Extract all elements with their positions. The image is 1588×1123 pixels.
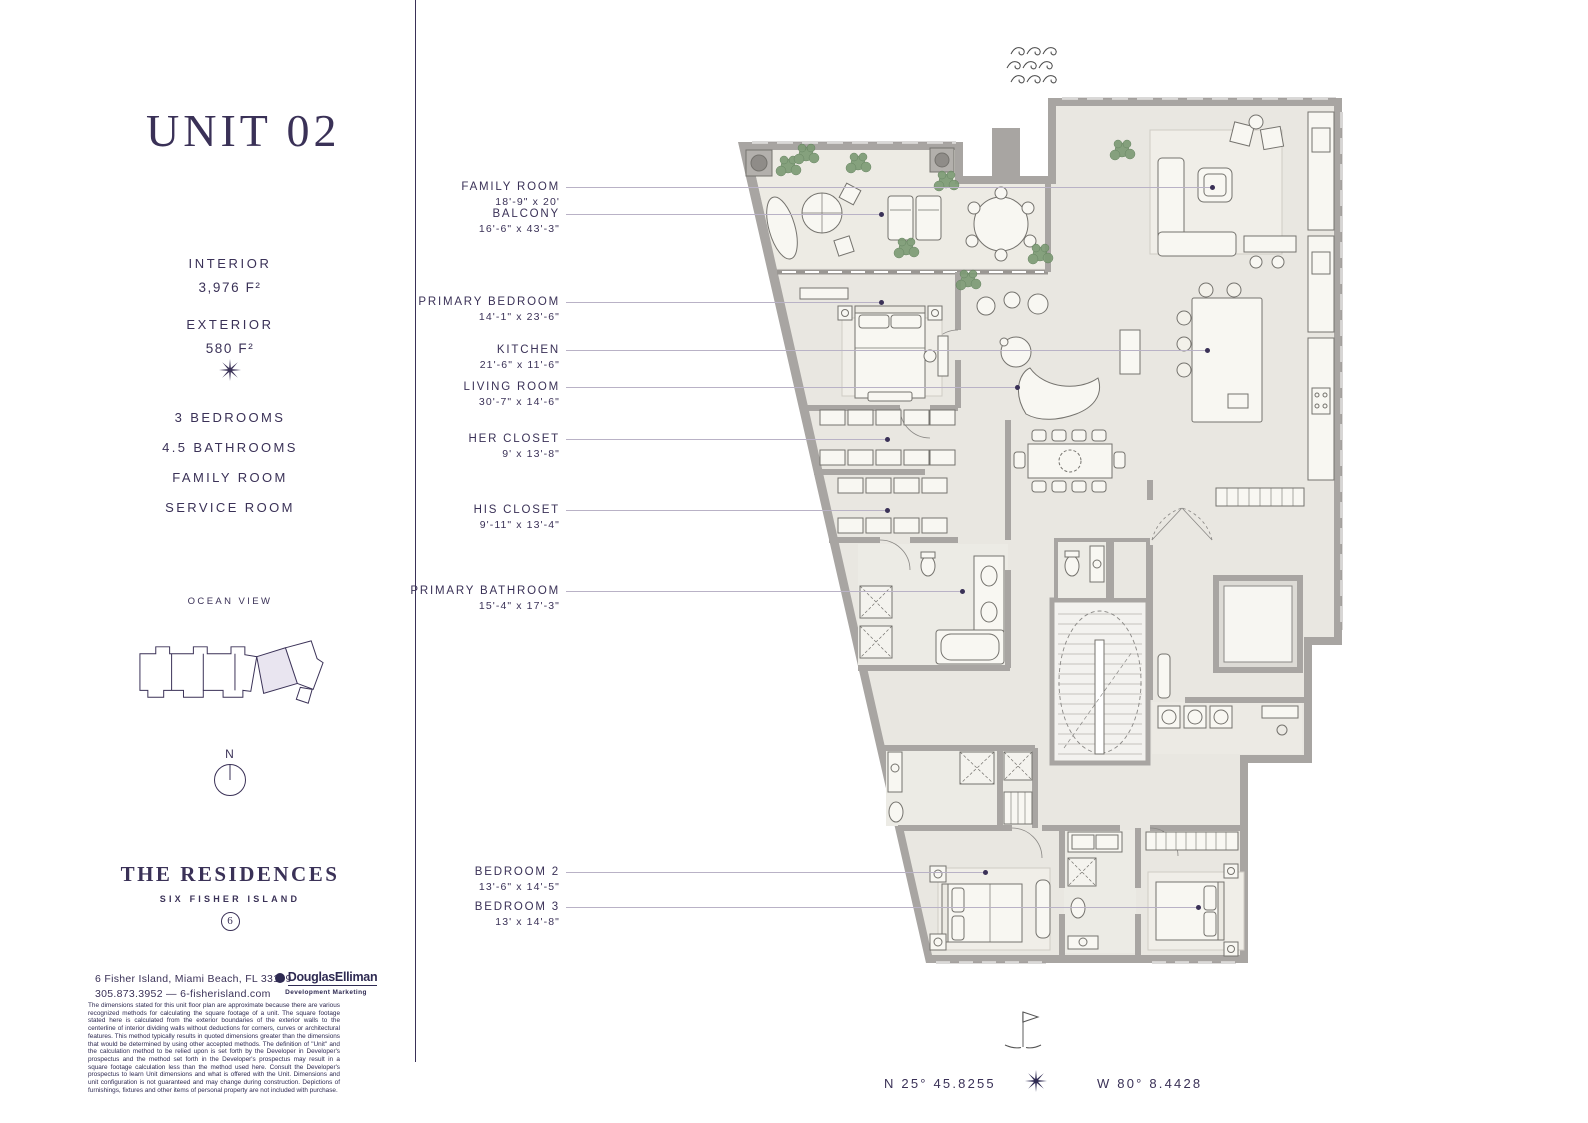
leader-family-room (566, 187, 1213, 188)
leader-dot (885, 437, 890, 442)
contact-block: 6 Fisher Island, Miami Beach, FL 33109 3… (95, 972, 292, 1002)
interior-label: INTERIOR (110, 256, 350, 271)
room-label-primary-bathroom: PRIMARY BATHROOM 15'-4" x 17'-3" (410, 585, 560, 612)
feature-bathrooms: 4.5 BATHROOMS (110, 440, 350, 455)
leader-dot (960, 589, 965, 594)
floorplan-drawing (700, 80, 1380, 980)
leader-dot (879, 300, 884, 305)
feature-bedrooms: 3 BEDROOMS (110, 410, 350, 425)
leader-primary-bathroom (566, 591, 963, 592)
building-keyplan-diagram (132, 628, 330, 726)
ocean-view-label: OCEAN VIEW (110, 596, 350, 607)
leader-dot (1205, 348, 1210, 353)
broker-logo: DouglasElliman Development Marketing (278, 970, 374, 996)
interior-value: 3,976 F² (110, 280, 350, 295)
feature-serviceroom: SERVICE ROOM (110, 500, 350, 515)
broker-logo-dot-icon (275, 973, 285, 983)
sidebar-divider-line (415, 0, 416, 1062)
leader-primary-bedroom (566, 302, 882, 303)
broker-tagline: Development Marketing (278, 989, 374, 996)
exterior-label: EXTERIOR (110, 317, 350, 332)
exterior-value: 580 F² (110, 341, 350, 356)
room-label-balcony: BALCONY 16'-6" x 43'-3" (479, 208, 560, 235)
room-label-living-room: LIVING ROOM 30'-7" x 14'-6" (464, 381, 560, 408)
leader-bedroom-3 (566, 907, 1199, 908)
leader-her-closet (566, 439, 888, 440)
area-stats: INTERIOR 3,976 F² EXTERIOR 580 F² (110, 234, 350, 356)
leader-dot (1015, 385, 1020, 390)
feature-familyroom: FAMILY ROOM (110, 470, 350, 485)
brand-monogram: 6 (221, 912, 240, 931)
keyplan-north-label: N (110, 747, 350, 761)
room-label-bedroom-3: BEDROOM 3 13' x 14'-8" (475, 901, 560, 928)
golf-flag-icon (1000, 1008, 1052, 1054)
keyplan-compass-icon (212, 762, 248, 798)
room-label-kitchen: KITCHEN 21'-6" x 11'-6" (480, 344, 560, 371)
floorplan-sheet: UNIT 02 INTERIOR 3,976 F² EXTERIOR 580 F… (0, 0, 1588, 1123)
longitude-text: W 80° 8.4428 (1097, 1076, 1202, 1091)
leader-dot (1196, 905, 1201, 910)
phone-web-line: 305.873.3952 — 6-fisherisland.com (95, 987, 292, 1002)
leader-living-room (566, 387, 1018, 388)
leader-kitchen (566, 350, 1208, 351)
latitude-text: N 25° 45.8255 (884, 1076, 996, 1091)
compass-star-icon (1023, 1068, 1049, 1094)
brand-name: THE RESIDENCES (90, 862, 370, 887)
leader-his-closet (566, 510, 888, 511)
address-line: 6 Fisher Island, Miami Beach, FL 33109 (95, 972, 292, 987)
leader-dot (1210, 185, 1215, 190)
brand-block: THE RESIDENCES SIX FISHER ISLAND 6 (90, 862, 370, 931)
room-label-family-room: FAMILY ROOM 18'-9" x 20' (461, 181, 560, 208)
leader-balcony (566, 214, 882, 215)
leader-dot (983, 870, 988, 875)
room-label-her-closet: HER CLOSET 9' x 13'-8" (469, 433, 561, 460)
leader-dot (885, 508, 890, 513)
brand-subtitle: SIX FISHER ISLAND (90, 894, 370, 904)
broker-name: DouglasElliman (288, 970, 378, 986)
room-label-his-closet: HIS CLOSET 9'-11" x 13'-4" (474, 504, 560, 531)
star-divider-icon (216, 356, 244, 384)
page-title: UNIT 02 (146, 104, 341, 157)
feature-list: 3 BEDROOMS 4.5 BATHROOMS FAMILY ROOM SER… (110, 410, 350, 530)
leader-bedroom-2 (566, 872, 986, 873)
room-label-bedroom-2: BEDROOM 2 13'-6" x 14'-5" (475, 866, 560, 893)
room-label-primary-bedroom: PRIMARY BEDROOM 14'-1" x 23'-6" (418, 296, 560, 323)
leader-dot (879, 212, 884, 217)
legal-disclaimer: The dimensions stated for this unit floo… (88, 1002, 340, 1094)
